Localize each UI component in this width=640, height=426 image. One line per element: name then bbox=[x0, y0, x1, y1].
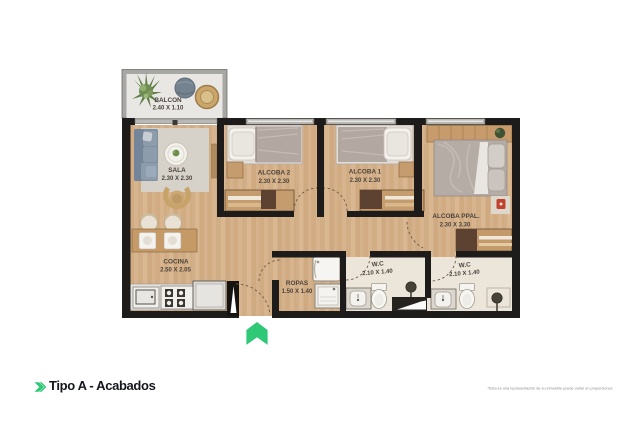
svg-text:2.50 X 2.05: 2.50 X 2.05 bbox=[160, 268, 191, 274]
svg-text:2.30 X 2.30: 2.30 X 2.30 bbox=[259, 179, 290, 185]
svg-text:2.30 X 2.30: 2.30 X 2.30 bbox=[162, 176, 193, 182]
svg-text:2.30 X 3.30: 2.30 X 3.30 bbox=[440, 223, 471, 229]
svg-text:Tipo A - Acabados: Tipo A - Acabados bbox=[49, 378, 156, 393]
svg-text:COCINA: COCINA bbox=[163, 259, 189, 266]
svg-text:ALCOBA 2: ALCOBA 2 bbox=[258, 170, 291, 177]
svg-text:2.30 X 2.30: 2.30 X 2.30 bbox=[350, 178, 381, 184]
svg-text:ALCOBA 1: ALCOBA 1 bbox=[349, 169, 382, 176]
svg-text:*Esta es una representación de: *Esta es una representación de su inmueb… bbox=[488, 387, 613, 391]
svg-text:W.C: W.C bbox=[458, 261, 471, 269]
svg-text:SALA: SALA bbox=[168, 167, 186, 174]
svg-text:2.40 X 1.10: 2.40 X 1.10 bbox=[153, 106, 184, 112]
svg-text:BALCON: BALCON bbox=[154, 97, 182, 104]
svg-text:ROPAS: ROPAS bbox=[286, 280, 309, 287]
svg-text:W.C: W.C bbox=[371, 260, 384, 268]
svg-text:1.50 X 1.40: 1.50 X 1.40 bbox=[282, 289, 313, 295]
svg-text:ALCOBA PPAL.: ALCOBA PPAL. bbox=[432, 213, 479, 220]
